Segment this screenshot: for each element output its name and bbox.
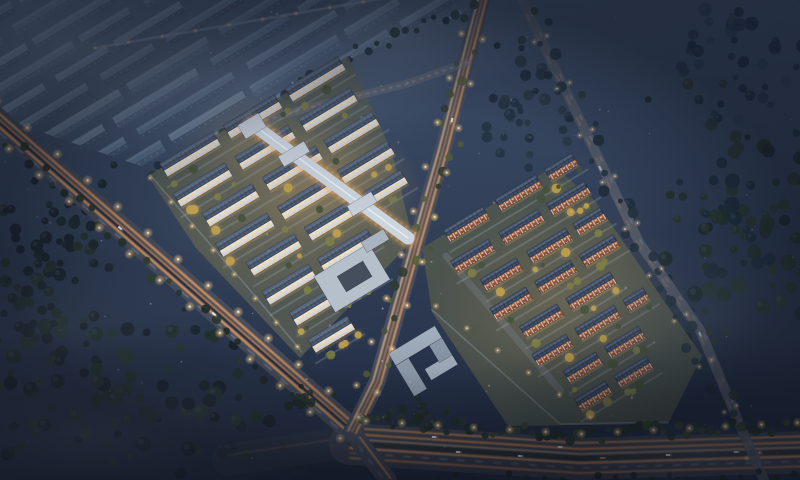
rendering-canvas [0,0,800,480]
color-grade [0,0,800,480]
aerial-night-rendering [0,0,800,480]
